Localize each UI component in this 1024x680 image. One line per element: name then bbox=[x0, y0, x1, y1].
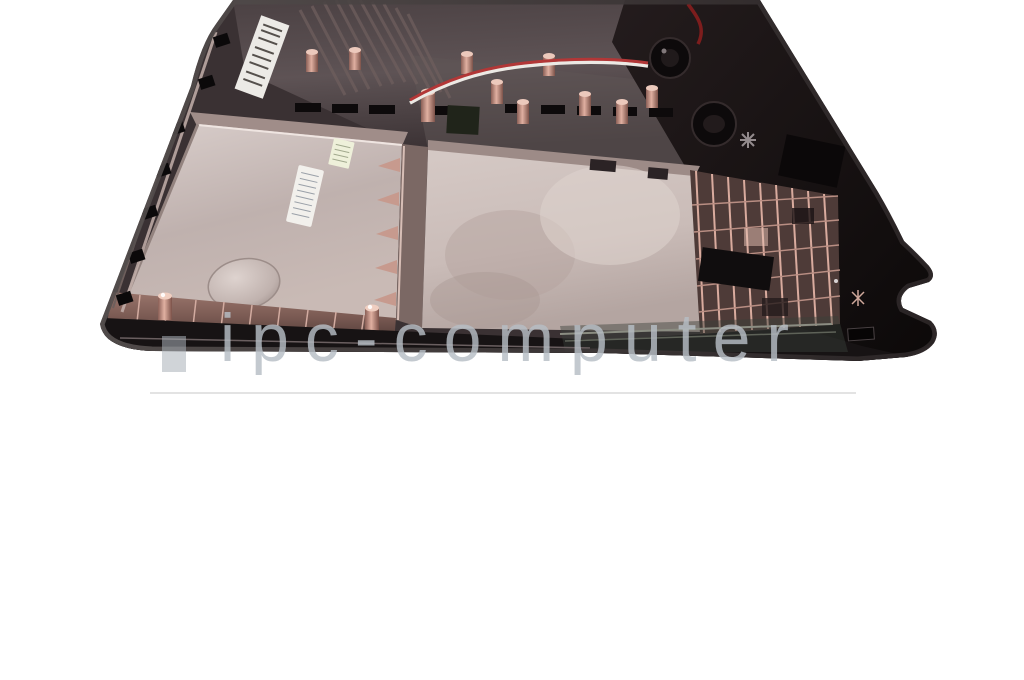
laptop-bottom-case-photo bbox=[0, 0, 1024, 680]
fan-mark-icon bbox=[740, 132, 756, 148]
right-bay bbox=[422, 140, 702, 332]
left-bay bbox=[126, 112, 408, 320]
product-photo: ipc-computer bbox=[0, 0, 1024, 680]
connector-block bbox=[446, 105, 479, 135]
